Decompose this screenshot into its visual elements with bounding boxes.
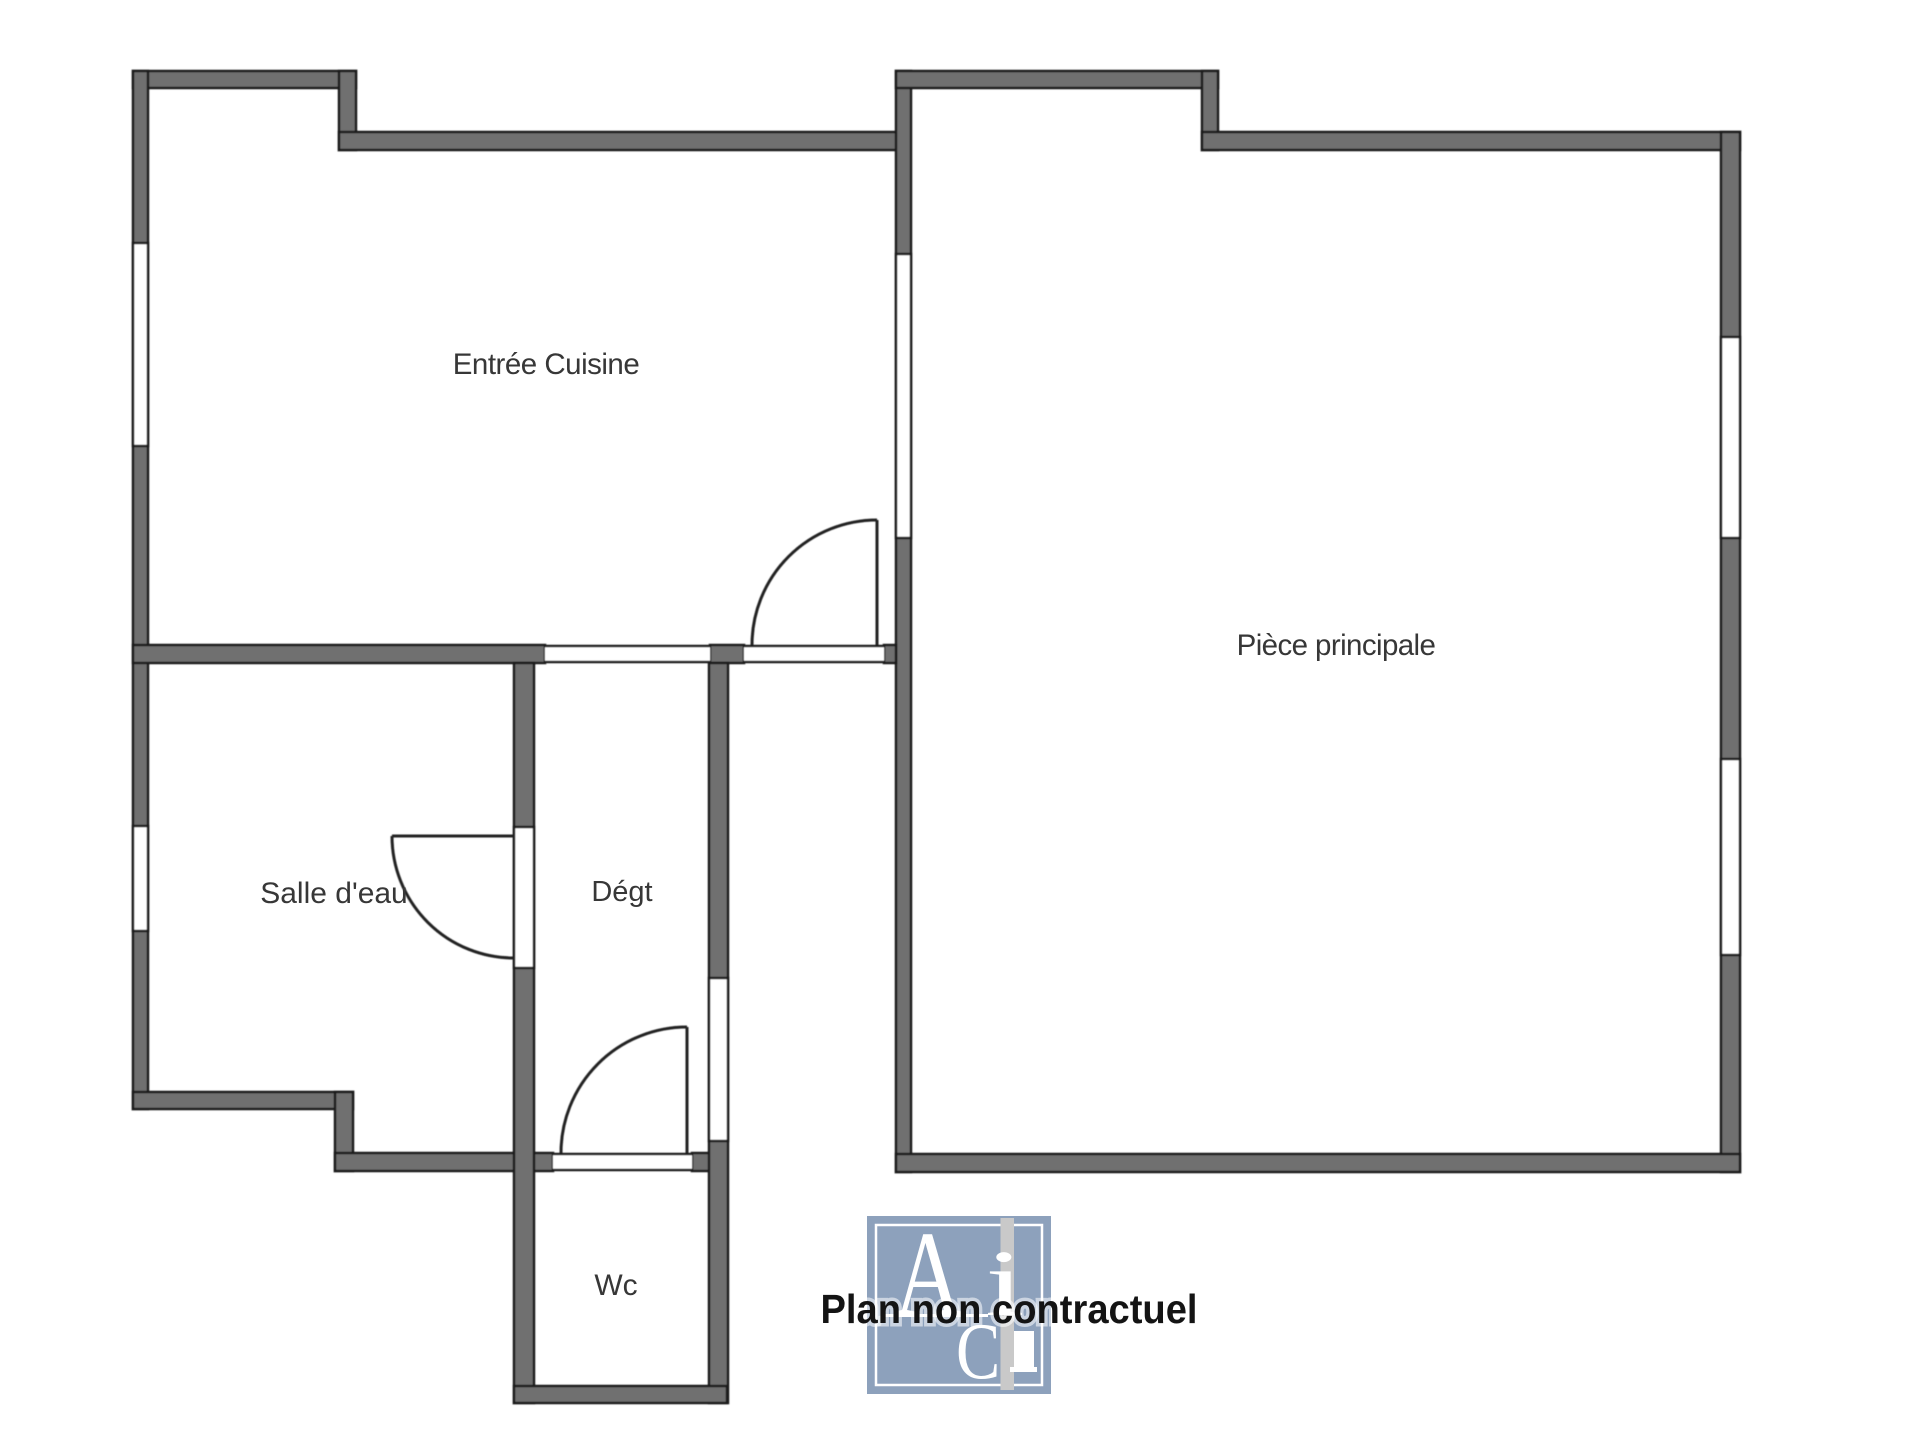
svg-text:Dégt: Dégt (591, 876, 652, 908)
svg-text:Salle d'eau: Salle d'eau (260, 877, 408, 910)
svg-text:Entrée Cuisine: Entrée Cuisine (453, 348, 640, 381)
svg-text:Pièce principale: Pièce principale (1237, 629, 1436, 662)
svg-text:Wc: Wc (594, 1269, 637, 1302)
svg-text:Plan non contractuel: Plan non contractuel (821, 1287, 1198, 1333)
